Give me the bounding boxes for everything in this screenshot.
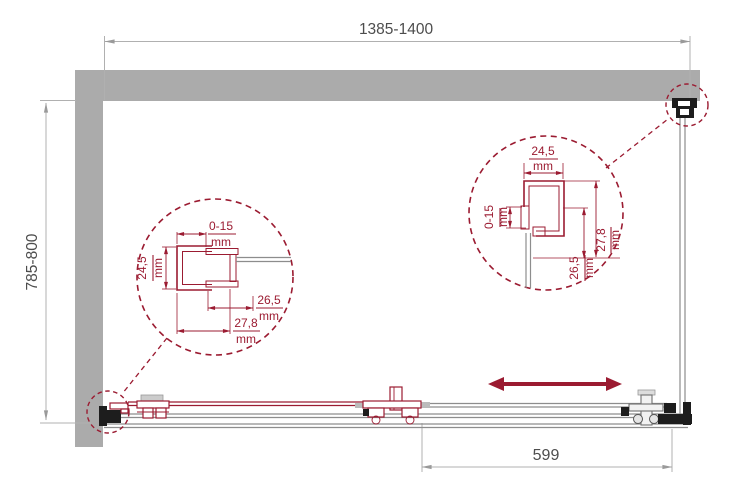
callout-leader-line <box>606 119 668 168</box>
roller-bracket <box>137 401 169 408</box>
adjustment-bracket <box>121 409 128 413</box>
corner-post <box>683 402 691 425</box>
range-unit: mm <box>211 235 231 249</box>
shower-enclosure-plan: 1385-1400 785-800 599 <box>0 0 750 500</box>
profile-unit: mm <box>151 258 165 278</box>
profile-inner <box>183 252 213 285</box>
stopper <box>363 409 369 416</box>
roller-wheel <box>650 415 659 424</box>
corner-fitting <box>664 403 676 413</box>
depth-dimension-label: 785-800 <box>24 233 41 290</box>
detail-left-dimensions: 0-15 mm 24,5 mm 26,5 mm 27,8 mm <box>135 219 283 346</box>
adjustment-bracket <box>110 403 128 409</box>
detail-callout-right: 24,5 mm 0-15 mm 26,5 mm 27,8 mm <box>469 84 708 290</box>
roller-wheel <box>143 408 153 418</box>
carriage-bracket <box>629 404 663 411</box>
detail-callout-left: 0-15 mm 24,5 mm 26,5 mm 27,8 mm <box>87 199 293 433</box>
width-value: 24,5 <box>531 144 555 158</box>
inner-unit: mm <box>259 309 279 323</box>
stopper <box>621 407 629 416</box>
right-roller-carriage <box>621 390 663 425</box>
width-dimension-label: 1385-1400 <box>359 21 434 38</box>
outer-unit: mm <box>236 332 256 346</box>
profile-outer <box>524 181 564 236</box>
return-panel-glass <box>680 117 685 414</box>
inner-value: 26,5 <box>257 293 281 307</box>
callout-leader-line <box>122 338 167 394</box>
outer-unit: mm <box>608 230 622 250</box>
top-right-wall-profile-fitting <box>672 98 697 118</box>
wall-profile-clamp <box>107 410 121 423</box>
profile-notch <box>680 109 689 115</box>
inner-value: 26,5 <box>567 256 581 280</box>
range-unit: mm <box>496 207 510 227</box>
glass-holder-side <box>521 206 529 229</box>
carriage-bracket <box>363 401 421 408</box>
width-unit: mm <box>533 159 553 173</box>
wall-profile-body <box>99 406 107 426</box>
outer-value: 27,8 <box>594 228 608 252</box>
holder-post <box>230 255 236 282</box>
arrow-head-right <box>606 377 622 391</box>
profile-value: 24,5 <box>135 256 149 280</box>
wall-left <box>75 70 103 447</box>
technical-drawing-canvas: 1385-1400 785-800 599 <box>0 0 750 500</box>
wall-profile-section-right <box>521 181 564 288</box>
range-value: 0-15 <box>209 219 233 233</box>
roller-cap <box>141 395 163 401</box>
slide-direction-arrow-icon <box>488 377 622 391</box>
roller-cap <box>638 390 655 395</box>
roller-wheel <box>156 408 166 418</box>
outer-value: 27,8 <box>234 316 258 330</box>
arrow-head-left <box>488 377 504 391</box>
roller-wheel <box>634 415 643 424</box>
center-roller-carriage <box>355 387 430 424</box>
wall-top <box>75 70 700 101</box>
profile-inner <box>529 186 559 231</box>
dimension-opening: 599 <box>422 423 672 472</box>
inner-unit: mm <box>582 258 596 278</box>
opening-dimension-label: 599 <box>533 447 560 464</box>
wall-profile-section-left <box>177 246 291 290</box>
range-value: 0-15 <box>482 205 496 229</box>
profile-notch <box>678 101 690 106</box>
detail-right-dimensions: 24,5 mm 0-15 mm 26,5 mm 27,8 mm <box>482 144 622 281</box>
